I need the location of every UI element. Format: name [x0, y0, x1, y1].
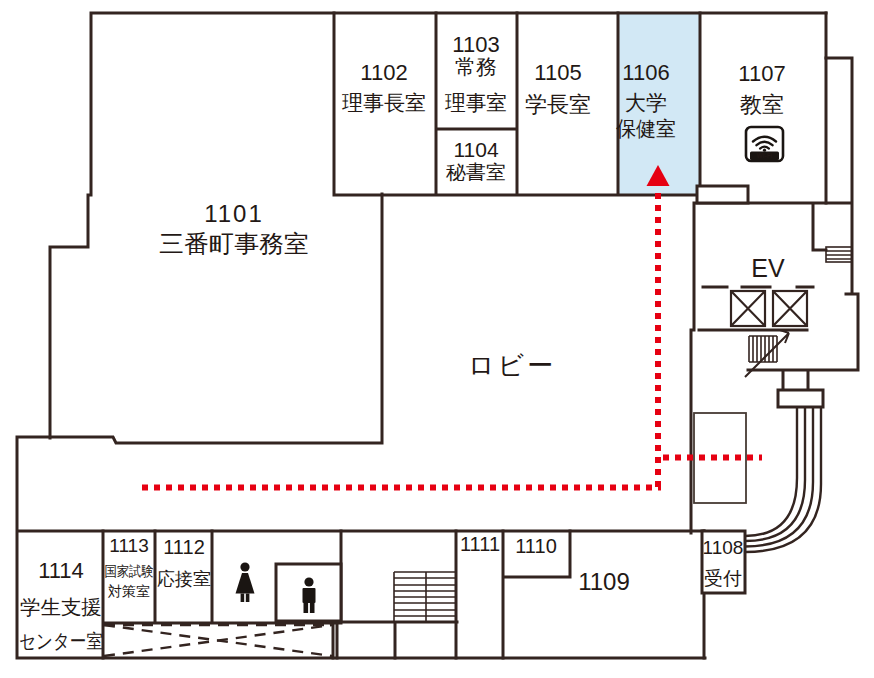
floor-plan-svg: Wi-Fi 1101 三番町事務室 1102 理事長室 1103 常務 理事室 … — [0, 0, 874, 678]
female-icon-legs — [241, 594, 250, 603]
room-1108-name: 受付 — [704, 568, 742, 589]
room-1106-name-line1: 大学 — [625, 91, 667, 114]
room-1110-number: 1110 — [515, 535, 557, 557]
room-1106-number: 1106 — [622, 60, 669, 85]
room-1113-number: 1113 — [109, 535, 148, 556]
room-1109-number: 1109 — [578, 568, 630, 595]
room-1103-name-line1: 常務 — [455, 55, 497, 78]
room-1112-number: 1112 — [163, 536, 205, 558]
mini-stairs-treads — [826, 251, 852, 259]
wifi-label: Wi-Fi — [757, 152, 773, 159]
room-1104-number: 1104 — [453, 138, 498, 161]
room-1107-number: 1107 — [738, 61, 785, 86]
elevator-shaft-right-cross — [773, 291, 807, 326]
room-1114-name-line2: センター室 — [19, 630, 103, 652]
vestibule-box — [697, 186, 748, 203]
room-1105-number: 1105 — [534, 60, 581, 85]
elevator-label: EV — [751, 254, 785, 282]
mini-stairs-icon — [826, 247, 852, 262]
dashed-void-area — [104, 625, 332, 656]
elevator-shaft-left-cross — [731, 291, 765, 326]
room-1106-name-line2: 保健室 — [616, 117, 676, 140]
female-icon-dress — [236, 573, 255, 594]
room-1113-name-line1: 国家試験 — [105, 563, 154, 579]
staircase-bottom-icon — [394, 572, 457, 622]
room-1112-name: 応接室 — [157, 569, 211, 589]
male-icon-head — [304, 577, 313, 586]
room-1107-name: 教室 — [740, 92, 784, 117]
room-1101-name: 三番町事務室 — [159, 230, 309, 257]
elevator-icon — [731, 291, 807, 326]
room-1114-number: 1114 — [38, 558, 84, 583]
entrance-line-1 — [745, 407, 797, 536]
floor-plan-canvas: Wi-Fi 1101 三番町事務室 1102 理事長室 1103 常務 理事室 … — [0, 0, 874, 678]
room-labels: 1101 三番町事務室 1102 理事長室 1103 常務 理事室 1104 秘… — [19, 32, 786, 652]
room-1105-name: 学長室 — [525, 92, 591, 117]
female-icon-head — [240, 562, 249, 571]
room-1113-name-line2: 対策室 — [108, 583, 150, 599]
room-1102-number: 1102 — [360, 60, 407, 85]
room-1104-name: 秘書室 — [446, 161, 506, 183]
wifi-icon: Wi-Fi — [746, 127, 783, 161]
room-1103-number: 1103 — [452, 32, 499, 57]
room-1108-number: 1108 — [703, 537, 744, 558]
room-1111-number: 1111 — [460, 533, 500, 555]
entrance-path-lines — [745, 407, 821, 552]
lobby-label: ロビー — [468, 350, 556, 380]
female-restroom-icon — [236, 562, 255, 602]
room-1103-name-line2: 理事室 — [445, 91, 507, 114]
room-1102-name: 理事長室 — [342, 91, 426, 114]
room-1101-number: 1101 — [204, 200, 264, 227]
room-1114-name-line1: 学生支援 — [20, 596, 102, 618]
entrance-landing-box — [778, 390, 823, 407]
male-icon-body — [303, 588, 316, 603]
